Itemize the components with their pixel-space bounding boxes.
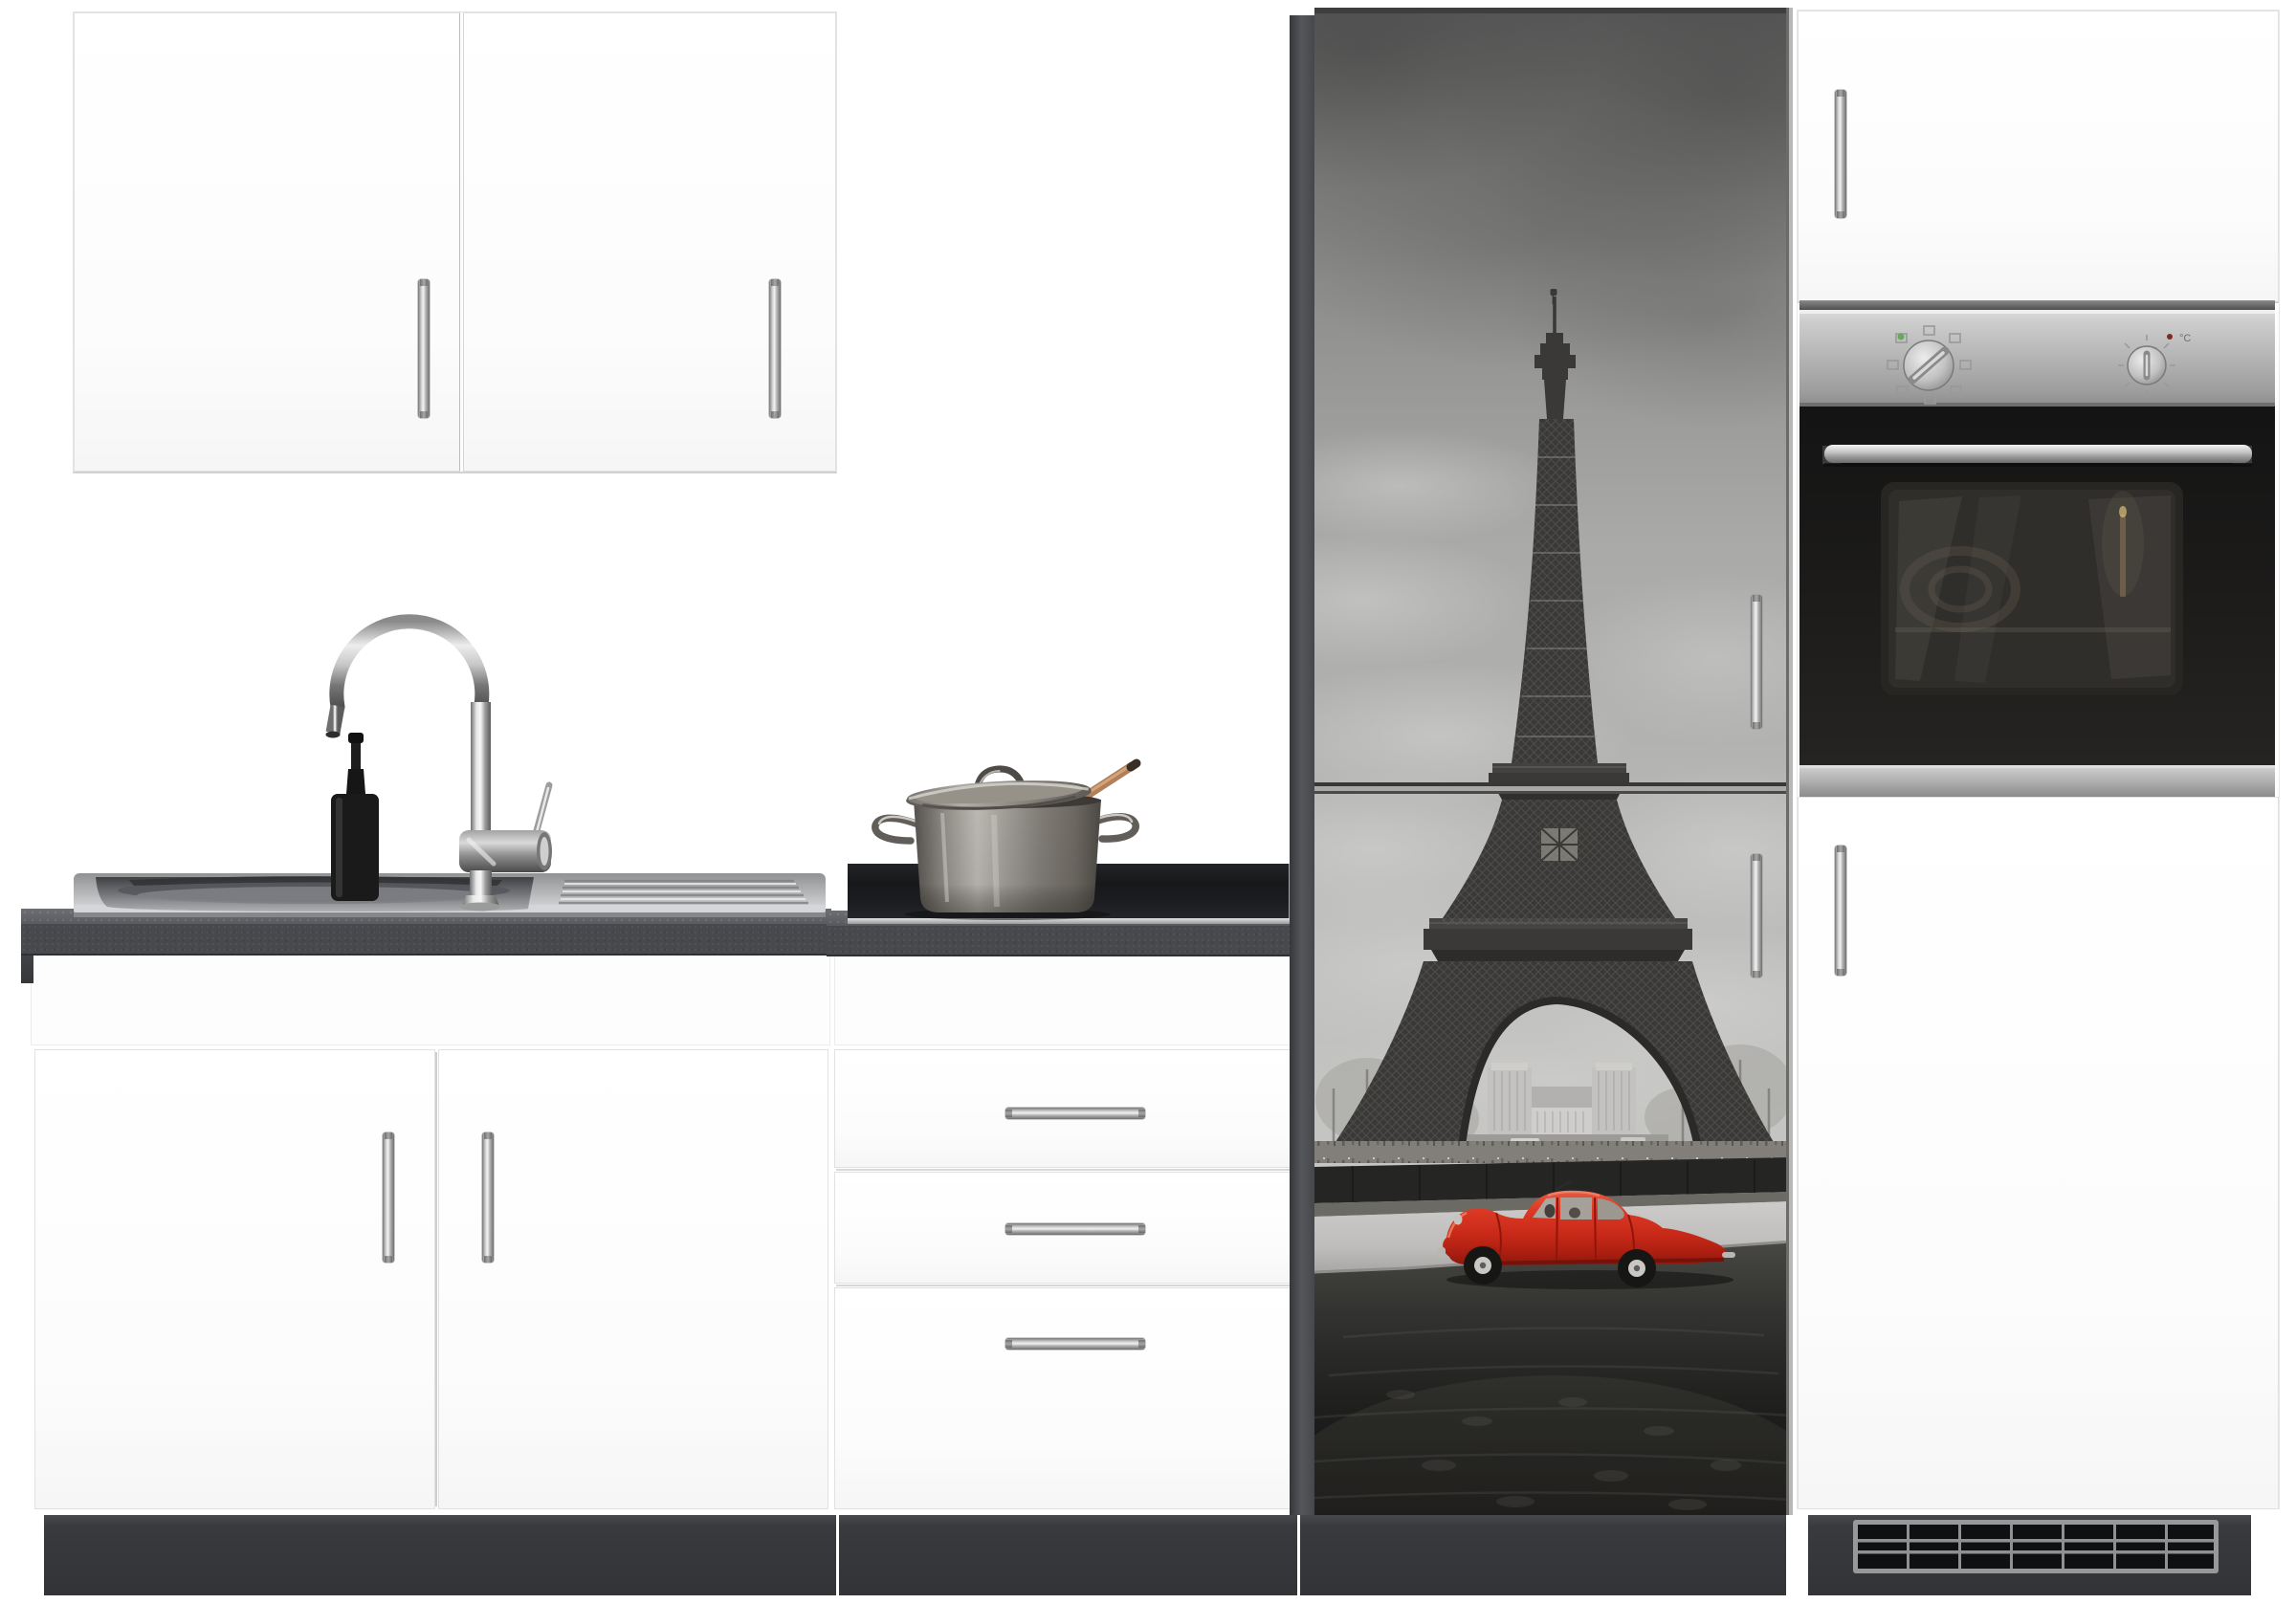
svg-text:°C: °C [2179,333,2191,344]
